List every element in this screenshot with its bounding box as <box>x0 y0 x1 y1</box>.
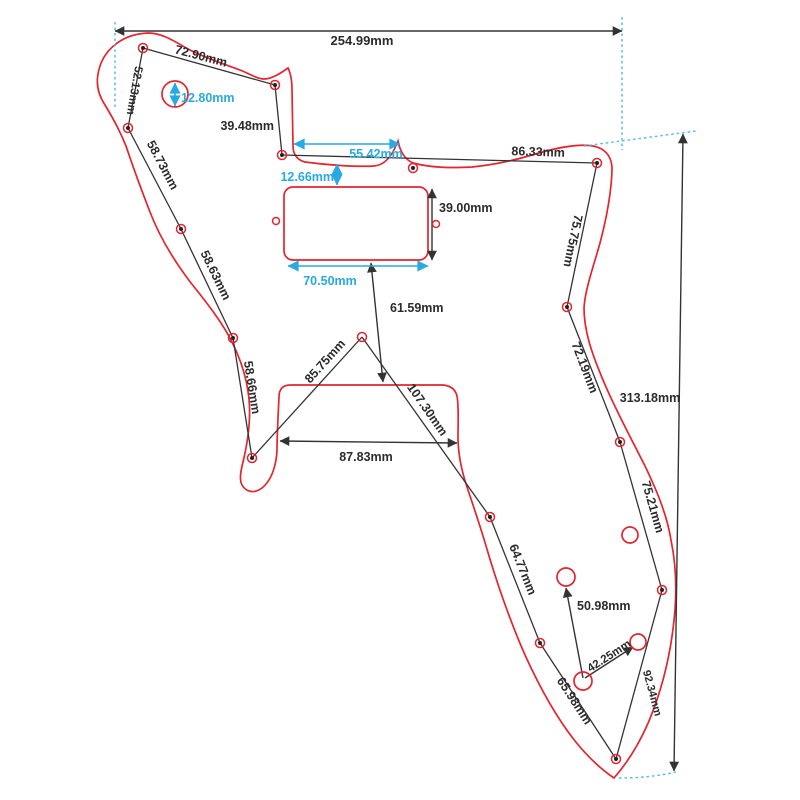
dim-label-pot-to-screw: 50.98mm <box>577 599 631 613</box>
dim-label-top-screw-span: 72.90mm <box>173 42 228 69</box>
dim-label-right-screw-span-1: 75.75mm <box>561 213 586 268</box>
dim-label-notch-height: 39.48mm <box>220 119 274 133</box>
dim-label-overall-height: 313.18mm <box>620 391 680 405</box>
dim-label-pickup-width: 70.50mm <box>303 274 357 288</box>
hole-center-dot <box>141 46 145 50</box>
dim-label-bridge-width: 87.83mm <box>339 450 393 464</box>
pot-hole <box>622 527 638 543</box>
hole-center-dot <box>618 440 622 444</box>
dim-label-overall-width: 254.99mm <box>331 33 394 48</box>
hole-center-dot <box>614 757 618 761</box>
dim-label-pickup-to-bridge: 61.59mm <box>390 301 444 315</box>
chain-line <box>252 337 362 458</box>
hole-center-dot <box>250 456 254 460</box>
hole-center-dot <box>660 588 664 592</box>
hole-center-dot <box>565 305 569 309</box>
guide-bottom <box>619 772 676 778</box>
dim-pickup-to-bridge-line <box>371 263 383 382</box>
neck-pickup-cutout <box>284 187 428 260</box>
dim-label-pickup-offset: 12.66mm <box>280 170 334 184</box>
pickup-screw-hole <box>433 221 440 228</box>
dim-label-upper-right-screw-span: 86.33mm <box>511 144 565 160</box>
dim-label-upper-left-screw-span: 52.13mm <box>124 65 144 116</box>
chain-line <box>275 85 282 155</box>
pickguard-drawing: 254.99mm 313.18mm 72.90mm 52.13mm 39.48m… <box>0 0 800 800</box>
dim-label-right-screw-span-2: 72.19mm <box>569 340 601 395</box>
dim-label-notch-width: 55.42mm <box>349 147 403 161</box>
dim-overall-height-line <box>674 134 683 771</box>
guide-top-right-slant <box>584 131 696 146</box>
chain-line <box>616 590 662 759</box>
hole-center-dot <box>538 641 542 645</box>
hole-center-dot <box>179 227 183 231</box>
hole-center-dot <box>411 166 415 170</box>
hole-center-dot <box>231 336 235 340</box>
hole-center-dot <box>273 83 277 87</box>
dimension-labels: 254.99mm 313.18mm 72.90mm 52.13mm 39.48m… <box>124 33 680 727</box>
hole-center-dot <box>280 153 284 157</box>
dim-label-pickup-height: 39.00mm <box>439 201 493 215</box>
hole-center-dot <box>126 126 130 130</box>
pickup-screw-hole <box>273 218 280 225</box>
dim-label-hole-diameter: 12.80mm <box>181 91 235 105</box>
dim-label-left-screw-span-1: 58.73mm <box>144 138 181 192</box>
dim-bridge-width-line <box>280 441 457 443</box>
hole-center-dot <box>488 515 492 519</box>
pot-hole <box>557 568 575 586</box>
pickguard-drawing-page: 254.99mm 313.18mm 72.90mm 52.13mm 39.48m… <box>0 0 800 800</box>
dim-label-pot-spacing: 42.25mm <box>585 638 633 675</box>
dim-label-lower-right-screw-span: 92.34mm <box>640 669 664 718</box>
hole-center-dot <box>595 161 599 165</box>
